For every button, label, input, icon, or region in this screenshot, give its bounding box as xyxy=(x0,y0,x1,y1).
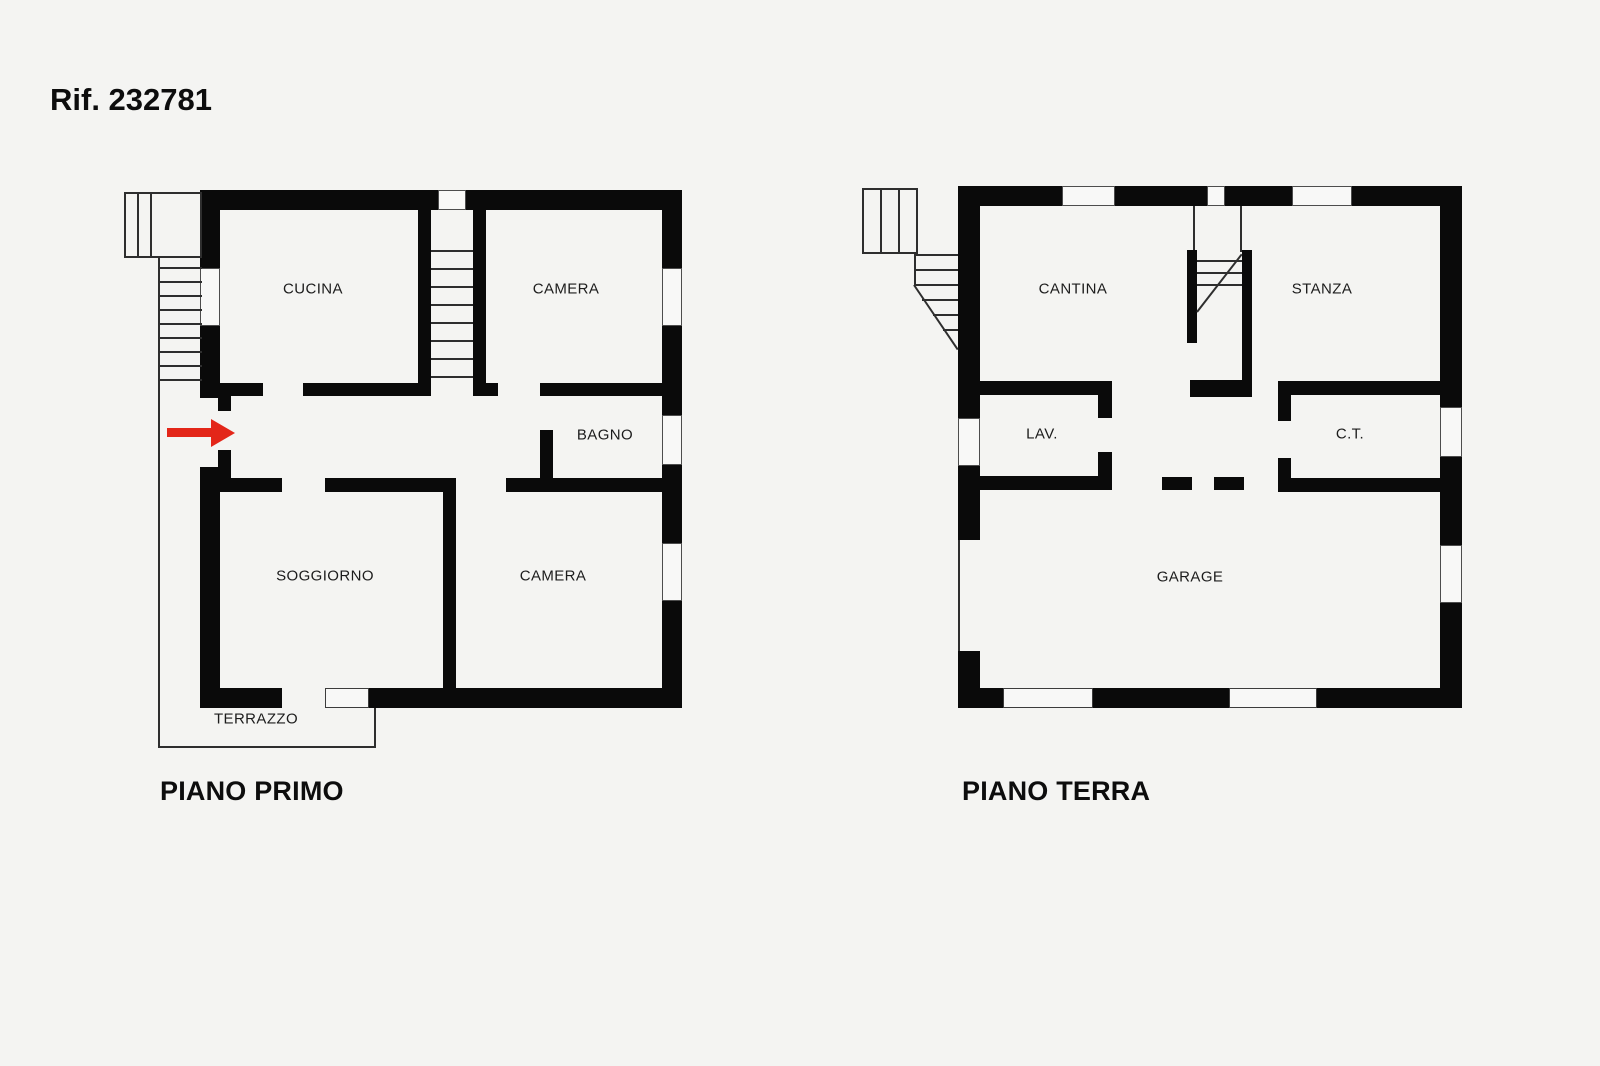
floor-title-piano-terra: PIANO TERRA xyxy=(962,776,1150,807)
stair-opening xyxy=(438,190,466,210)
wall-segment xyxy=(1352,186,1462,206)
room-label-soggiorno: SOGGIORNO xyxy=(276,568,374,585)
wall-segment xyxy=(958,186,1062,206)
stairwell-line xyxy=(1193,206,1195,252)
garage-door-opening xyxy=(1229,688,1317,708)
room-label-camera: CAMERA xyxy=(520,568,587,585)
wall-segment xyxy=(1278,381,1462,395)
window-opening xyxy=(662,415,682,465)
stairwell-wall xyxy=(1190,380,1252,397)
stair-step-line xyxy=(898,188,900,254)
wall-segment xyxy=(369,688,682,708)
wall-segment xyxy=(980,476,1112,490)
stair-step-line xyxy=(158,351,202,353)
stairwell-wall xyxy=(1242,250,1252,380)
wall-segment xyxy=(958,466,980,540)
wall-segment xyxy=(1225,186,1292,206)
wall-segment xyxy=(303,383,418,396)
stair-step-line xyxy=(916,269,958,271)
carport-edge-line xyxy=(958,540,960,651)
stair-step-line xyxy=(933,314,958,316)
garage-door-opening xyxy=(1003,688,1093,708)
wall-segment xyxy=(540,383,682,396)
stair-step-line xyxy=(431,340,473,342)
reference-number: Rif. 232781 xyxy=(50,82,212,118)
window-opening xyxy=(1292,186,1352,206)
terrace-outline-line xyxy=(158,258,160,748)
wall-segment xyxy=(1440,603,1462,688)
stair-step-line xyxy=(158,379,202,381)
terrace-outline-line xyxy=(374,708,376,748)
wall-segment xyxy=(662,210,682,268)
wall-segment xyxy=(1162,477,1192,490)
stair-step-line xyxy=(916,284,958,286)
stair-step-line xyxy=(150,192,152,258)
room-label-stanza: STANZA xyxy=(1292,281,1352,298)
wall-segment xyxy=(1317,688,1462,708)
wall-segment xyxy=(1278,395,1291,421)
stair-step-line xyxy=(922,299,958,301)
wall-segment xyxy=(506,478,682,492)
stair-step-line xyxy=(158,295,202,297)
wall-segment xyxy=(958,688,1003,708)
window-opening xyxy=(958,418,980,466)
stairwell-wall xyxy=(473,210,486,396)
stair-step-line xyxy=(431,286,473,288)
room-label-cucina: CUCINA xyxy=(283,281,343,298)
wall-segment xyxy=(200,326,220,398)
stair-step-line xyxy=(158,309,202,311)
entrance-arrow-icon xyxy=(211,419,235,447)
room-label-cantina: CANTINA xyxy=(1039,281,1108,298)
wall-segment xyxy=(218,383,231,411)
stair-step-line xyxy=(158,365,202,367)
stair-landing-outline xyxy=(124,192,202,258)
stair-opening xyxy=(1207,186,1225,206)
floor-title-piano-primo: PIANO PRIMO xyxy=(160,776,344,807)
wall-segment xyxy=(1278,478,1462,492)
stair-step-line xyxy=(431,376,473,378)
window-opening xyxy=(1440,407,1462,457)
stair-step-line xyxy=(158,267,202,269)
room-label-garage: GARAGE xyxy=(1157,569,1224,586)
wall-segment xyxy=(220,478,282,492)
wall-segment xyxy=(486,383,498,396)
wall-segment xyxy=(218,450,231,478)
wall-segment xyxy=(200,190,438,210)
wall-segment xyxy=(662,601,682,688)
room-label-lav: LAV. xyxy=(1026,426,1058,443)
stair-step-line xyxy=(431,304,473,306)
wall-segment xyxy=(1093,688,1229,708)
stair-landing-outline xyxy=(862,188,918,254)
room-label-ct: C.T. xyxy=(1336,426,1364,443)
wall-segment xyxy=(200,467,220,688)
wall-segment xyxy=(466,190,682,210)
wall-segment xyxy=(662,465,682,543)
wall-segment xyxy=(1214,477,1244,490)
wall-segment xyxy=(980,381,1112,395)
window-opening xyxy=(662,268,682,326)
stair-diagonal-line xyxy=(913,284,958,350)
stair-step-line xyxy=(158,281,202,283)
stair-step-line xyxy=(1197,272,1242,274)
room-label-terrazzo: TERRAZZO xyxy=(214,711,298,728)
window-opening xyxy=(1062,186,1115,206)
stair-step-line xyxy=(158,323,202,325)
wall-segment xyxy=(200,210,220,268)
floorplan-sheet: Rif. 232781 CUCINACAMERABAGNOSOGGIORNOCA… xyxy=(0,0,1600,1066)
wall-segment xyxy=(958,206,980,418)
window-opening xyxy=(1440,545,1462,603)
wall-segment xyxy=(1440,457,1462,545)
stair-step-line xyxy=(137,192,139,258)
stair-step-line xyxy=(431,322,473,324)
stair-step-line xyxy=(880,188,882,254)
stair-step-line xyxy=(916,254,958,256)
room-label-camera: CAMERA xyxy=(533,281,600,298)
terrace-outline-line xyxy=(158,746,376,748)
wall-segment xyxy=(200,688,282,708)
wall-segment xyxy=(1115,186,1207,206)
wall-segment xyxy=(1098,395,1112,418)
window-opening xyxy=(200,268,220,326)
wall-segment xyxy=(958,651,980,688)
stairwell-line xyxy=(1240,206,1242,252)
wall-segment xyxy=(443,492,456,688)
wall-segment xyxy=(325,478,456,492)
wall-segment xyxy=(1098,452,1112,478)
window-opening xyxy=(662,543,682,601)
wall-segment xyxy=(1278,458,1291,478)
stair-step-line xyxy=(158,337,202,339)
wall-segment xyxy=(1440,206,1462,407)
stairwell-wall xyxy=(418,210,431,396)
wall-segment xyxy=(662,326,682,415)
terrace-door-opening xyxy=(325,688,369,708)
entrance-arrow-icon xyxy=(167,428,211,437)
stairwell-wall xyxy=(1187,250,1197,343)
stair-step-line xyxy=(431,268,473,270)
stair-step-line xyxy=(431,250,473,252)
stair-step-line xyxy=(431,358,473,360)
room-label-bagno: BAGNO xyxy=(577,427,633,444)
